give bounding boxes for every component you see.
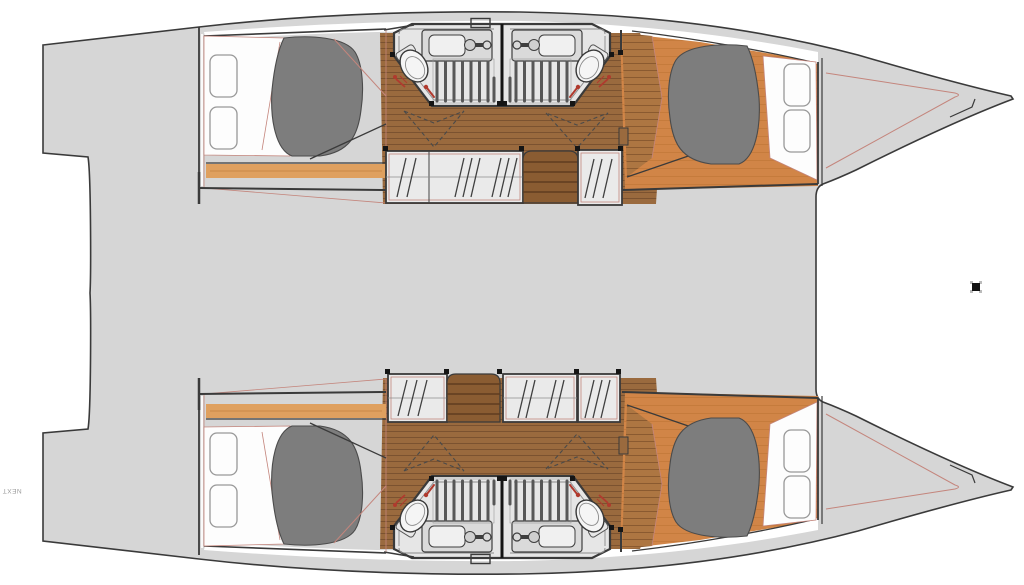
forward-double-berth <box>668 45 759 164</box>
companionway-steps <box>523 151 578 203</box>
cabinets-port <box>383 146 623 205</box>
wardrobe <box>578 374 620 422</box>
catamaran-floor-plan: NEXT <box>0 0 1024 585</box>
companionway-steps <box>447 374 500 422</box>
wardrobe <box>578 150 622 205</box>
watermark-text: NEXT <box>2 487 21 494</box>
cabinets-starboard <box>385 369 621 422</box>
registration-mark <box>970 281 982 293</box>
corridor-pillar <box>619 128 628 145</box>
hatch-cushion <box>784 110 810 152</box>
hatch-cushion <box>784 64 810 106</box>
sink-basin <box>429 35 465 56</box>
hatch-cushion <box>210 107 237 149</box>
catamaran-floor-plan-canvas: NEXT <box>0 0 1024 585</box>
hatch-cushion <box>210 55 237 97</box>
